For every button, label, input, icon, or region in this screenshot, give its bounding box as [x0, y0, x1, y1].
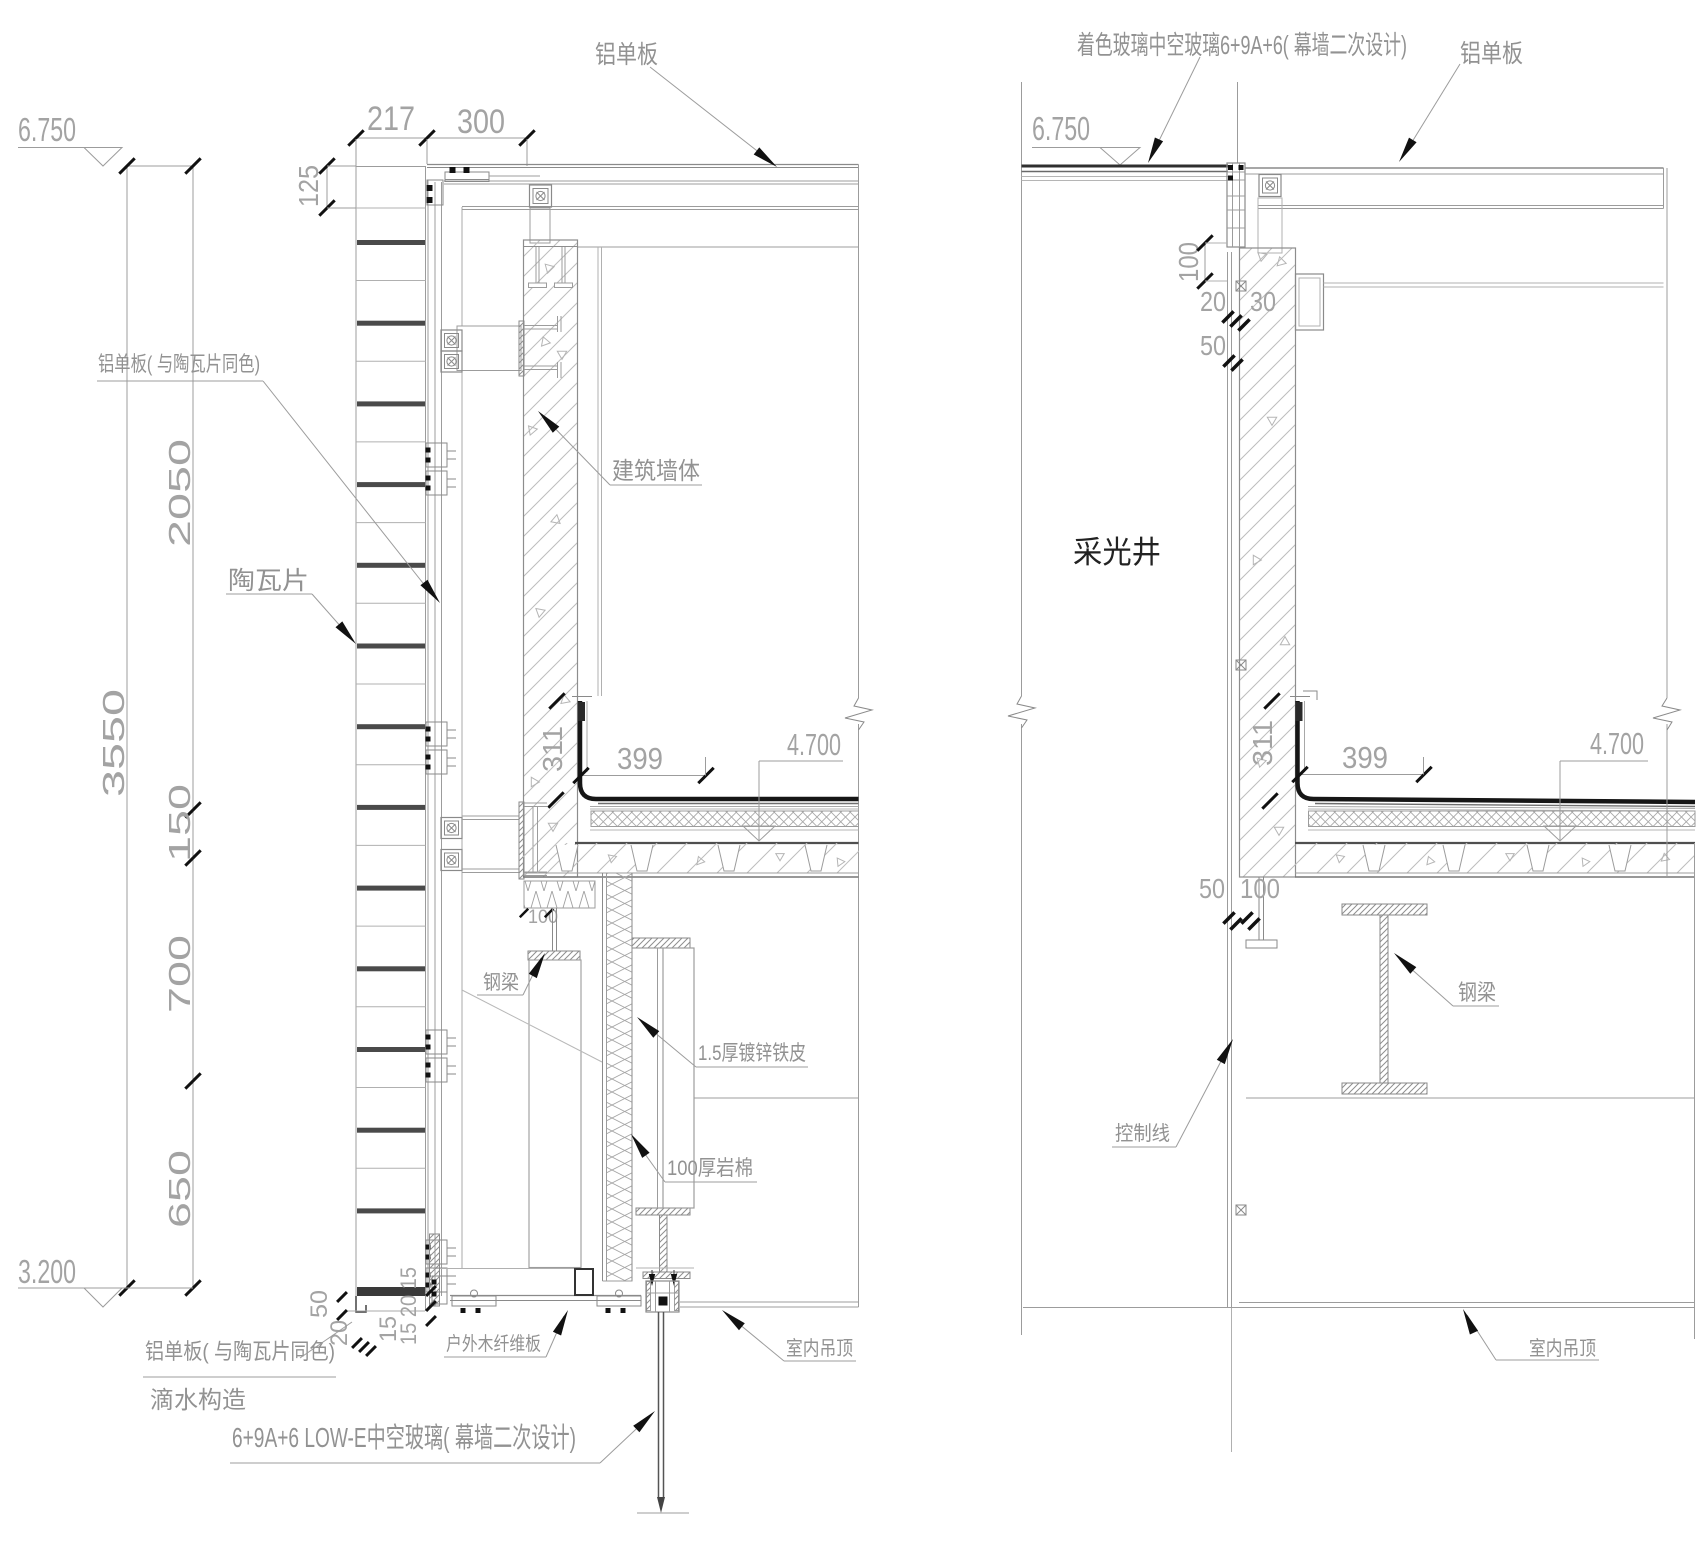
svg-text:50: 50	[306, 1290, 333, 1318]
svg-text:311: 311	[1247, 720, 1278, 766]
svg-text:399: 399	[1342, 740, 1388, 775]
svg-text:控制线: 控制线	[1115, 1122, 1170, 1145]
svg-text:铝单板: 铝单板	[1460, 40, 1523, 68]
svg-text:50: 50	[1199, 873, 1225, 904]
svg-text:2050: 2050	[162, 439, 197, 547]
svg-text:150: 150	[162, 784, 197, 862]
svg-text:311: 311	[537, 726, 568, 772]
svg-text:700: 700	[162, 935, 197, 1013]
svg-text:建筑墙体: 建筑墙体	[612, 458, 700, 485]
svg-text:1.5厚镀锌铁皮: 1.5厚镀锌铁皮	[698, 1042, 806, 1065]
svg-text:滴水构造: 滴水构造	[150, 1387, 246, 1414]
svg-text:100: 100	[1240, 873, 1280, 904]
svg-text:100厚岩棉: 100厚岩棉	[667, 1157, 753, 1180]
svg-text:15 20 15: 15 20 15	[396, 1267, 421, 1345]
svg-text:采光井: 采光井	[1073, 535, 1161, 570]
svg-text:30: 30	[1250, 286, 1276, 317]
svg-text:陶瓦片: 陶瓦片	[228, 567, 309, 595]
svg-text:钢梁: 钢梁	[1458, 980, 1496, 1005]
svg-text:4.700: 4.700	[1590, 726, 1644, 761]
svg-text:6+9A+6 LOW-E中空玻璃( 幕墙二次设计): 6+9A+6 LOW-E中空玻璃( 幕墙二次设计)	[232, 1422, 576, 1453]
svg-text:50: 50	[1200, 330, 1226, 361]
svg-text:4.700: 4.700	[787, 727, 841, 762]
svg-text:铝单板( 与陶瓦片同色): 铝单板( 与陶瓦片同色)	[145, 1339, 335, 1364]
svg-text:室内吊顶: 室内吊顶	[786, 1337, 853, 1360]
svg-text:20: 20	[1200, 286, 1226, 317]
svg-text:217: 217	[367, 100, 415, 138]
svg-text:铝单板( 与陶瓦片同色): 铝单板( 与陶瓦片同色)	[98, 353, 260, 376]
svg-text:3550: 3550	[96, 689, 131, 797]
svg-text:着色玻璃中空玻璃6+9A+6( 幕墙二次设计): 着色玻璃中空玻璃6+9A+6( 幕墙二次设计)	[1077, 30, 1407, 60]
svg-text:300: 300	[457, 103, 505, 141]
svg-text:3.200: 3.200	[18, 1253, 76, 1290]
svg-text:650: 650	[162, 1150, 197, 1228]
svg-text:399: 399	[617, 741, 663, 776]
svg-text:125: 125	[293, 165, 324, 207]
svg-text:铝单板: 铝单板	[595, 41, 658, 69]
svg-text:户外木纤维板: 户外木纤维板	[446, 1333, 541, 1355]
svg-text:室内吊顶: 室内吊顶	[1529, 1337, 1596, 1360]
svg-text:6.750: 6.750	[1032, 110, 1090, 147]
svg-text:钢梁: 钢梁	[483, 971, 519, 994]
svg-text:6.750: 6.750	[18, 111, 76, 148]
